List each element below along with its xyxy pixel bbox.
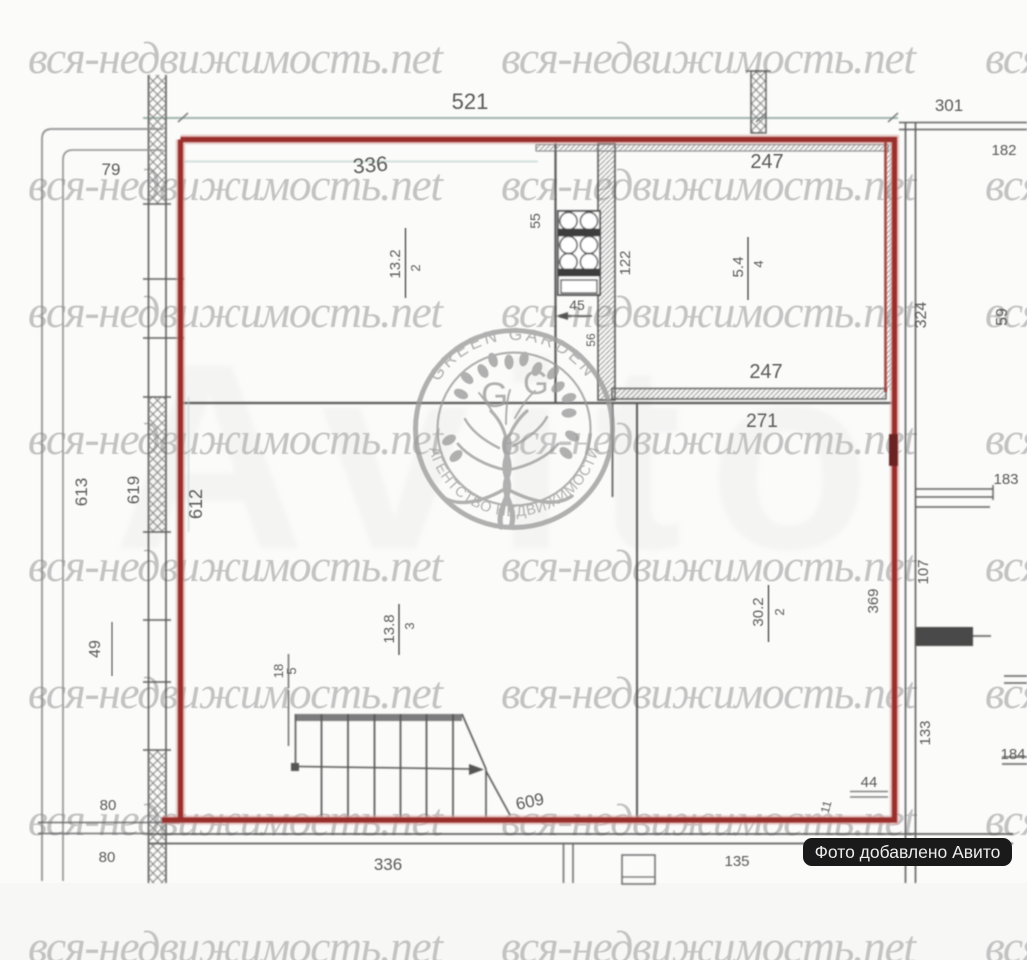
svg-text:184: 184 [1000,746,1025,763]
svg-text:521: 521 [452,89,489,114]
svg-text:80: 80 [100,797,117,814]
svg-text:324: 324 [913,302,930,329]
svg-text:13.8: 13.8 [381,614,398,643]
svg-text:вся-недвижимость.net: вся-недвижимость.net [28,286,444,337]
svg-text:122: 122 [617,250,634,275]
svg-text:5: 5 [284,667,299,674]
svg-text:247: 247 [749,361,782,383]
svg-text:вся-недвижимость.net: вся-недвижимость.net [28,32,444,83]
svg-text:247: 247 [750,151,783,173]
svg-text:133: 133 [917,720,934,745]
svg-text:135: 135 [724,853,749,870]
svg-text:2: 2 [408,264,423,271]
svg-text:49: 49 [87,640,104,658]
svg-text:13.2: 13.2 [387,249,404,278]
svg-text:4: 4 [751,260,766,267]
svg-text:336: 336 [352,153,389,179]
svg-text:45: 45 [569,297,585,313]
svg-text:вся-недвижимость.net: вся-недвижимость.net [28,667,444,718]
svg-text:вся-недвижимость.net: вся-недвижимость.net [985,413,1027,464]
svg-text:56: 56 [584,333,598,347]
svg-text:619: 619 [124,476,143,504]
svg-text:336: 336 [374,855,402,874]
svg-text:182: 182 [991,142,1016,159]
svg-text:G: G [481,376,508,415]
svg-text:вся-недвижимость.net: вся-недвижимость.net [501,32,917,83]
svg-text:613: 613 [72,478,91,506]
svg-text:612: 612 [186,489,206,519]
svg-text:вся-недвижимость.net: вся-недвижимость.net [501,540,917,591]
svg-text:вся-недвижимость.net: вся-недвижимость.net [501,921,917,960]
svg-text:вся-недвижимость.net: вся-недвижимость.net [501,159,917,210]
svg-text:вся-недвижимость.net: вся-недвижимость.net [985,794,1027,845]
svg-text:вся-недвижимость.net: вся-недвижимость.net [985,159,1027,210]
svg-text:30.2: 30.2 [750,597,767,626]
svg-text:вся-недвижимость.net: вся-недвижимость.net [28,540,444,591]
svg-text:вся-недвижимость.net: вся-недвижимость.net [28,921,444,960]
svg-text:369: 369 [865,588,882,613]
svg-text:Фото добавлено Авито: Фото добавлено Авито [815,842,1001,862]
svg-text:79: 79 [102,160,121,179]
svg-text:вся-недвижимость.net: вся-недвижимость.net [985,32,1027,83]
svg-text:59: 59 [994,308,1011,326]
svg-text:183: 183 [993,471,1018,488]
svg-text:3: 3 [402,622,417,629]
svg-text:301: 301 [935,96,963,115]
svg-text:вся-недвижимость.net: вся-недвижимость.net [985,667,1027,718]
svg-text:271: 271 [746,411,778,432]
svg-text:вся-недвижимость.net: вся-недвижимость.net [28,413,444,464]
svg-text:вся-недвижимость.net: вся-недвижимость.net [985,540,1027,591]
svg-text:вся-недвижимость.net: вся-недвижимость.net [501,667,917,718]
svg-text:2: 2 [772,608,787,615]
svg-text:107: 107 [915,559,932,584]
svg-text:5.4: 5.4 [730,257,747,278]
svg-text:вся-недвижимость.net: вся-недвижимость.net [985,921,1027,960]
svg-text:55: 55 [527,213,543,229]
svg-text:44: 44 [861,774,878,791]
svg-text:80: 80 [99,849,116,866]
